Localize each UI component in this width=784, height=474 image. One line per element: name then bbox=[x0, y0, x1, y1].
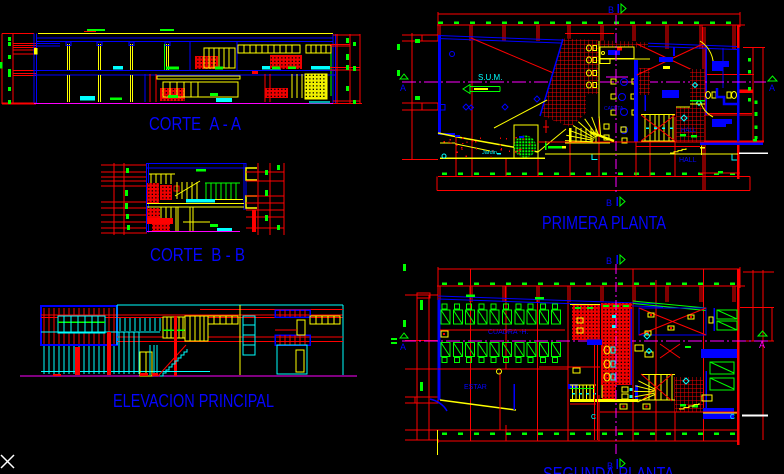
svg-text:ELEVACION PRINCIPAL: ELEVACION PRINCIPAL bbox=[113, 391, 274, 411]
svg-text:SEGUNDA PLANTA: SEGUNDA PLANTA bbox=[543, 464, 674, 474]
svg-text:B: B bbox=[608, 5, 614, 15]
svg-text:B: B bbox=[606, 256, 612, 266]
svg-text:B: B bbox=[606, 198, 612, 208]
svg-text:PRIMERA PLANTA: PRIMERA PLANTA bbox=[542, 213, 666, 233]
svg-text:Jardin: Jardin bbox=[482, 150, 497, 156]
svg-text:HALL: HALL bbox=[681, 128, 697, 134]
svg-text:A: A bbox=[400, 83, 406, 93]
svg-text:ESTAR: ESTAR bbox=[464, 384, 487, 391]
svg-text:CORTE A - A: CORTE A - A bbox=[149, 114, 241, 134]
svg-text:A: A bbox=[769, 83, 775, 93]
svg-text:CAFETA: CAFETA bbox=[604, 106, 624, 112]
svg-text:A: A bbox=[759, 340, 765, 350]
svg-text:C: C bbox=[591, 414, 596, 421]
svg-text:HALL: HALL bbox=[679, 157, 697, 164]
svg-text:A: A bbox=[400, 342, 406, 352]
svg-text:CORTE B - B: CORTE B - B bbox=[150, 245, 245, 265]
svg-text:C: C bbox=[730, 414, 735, 421]
svg-text:S.U.M.: S.U.M. bbox=[478, 73, 502, 82]
